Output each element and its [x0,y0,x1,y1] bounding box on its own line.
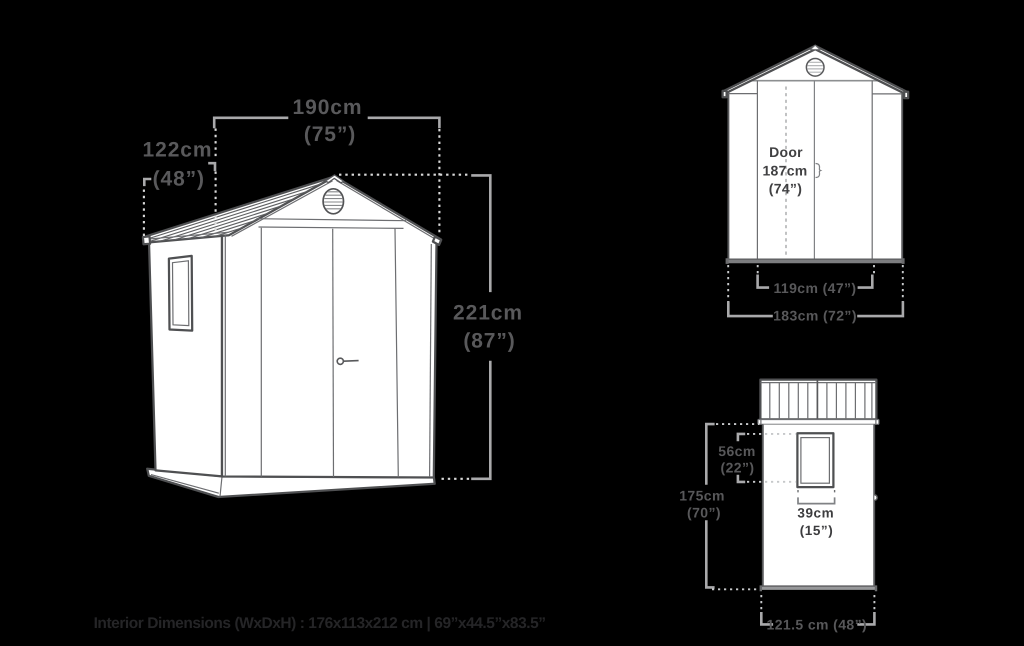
svg-text:Interior Dimensions (WxDxH) :: Interior Dimensions (WxDxH) : 176x113x21… [94,615,546,632]
svg-text:119cm (47”): 119cm (47”) [773,280,856,296]
svg-text:56cm: 56cm [718,443,755,459]
svg-text:(70”): (70”) [687,504,721,520]
svg-text:187cm: 187cm [762,163,807,179]
svg-text:121.5 cm (48”): 121.5 cm (48”) [767,616,868,632]
svg-text:(22”): (22”) [721,459,755,475]
svg-text:175cm: 175cm [679,487,725,503]
svg-text:(15”): (15”) [800,523,834,538]
svg-text:(74”): (74”) [769,181,802,197]
svg-text:(87”): (87”) [463,330,515,353]
svg-text:(75”): (75”) [304,123,356,146]
svg-text:190cm: 190cm [293,96,363,119]
svg-text:(48”): (48”) [153,168,205,191]
svg-text:Door: Door [769,144,803,160]
svg-text:39cm: 39cm [797,506,834,521]
svg-text:122cm: 122cm [143,139,213,162]
svg-text:183cm (72”): 183cm (72”) [773,308,857,324]
svg-text:221cm: 221cm [453,302,523,325]
